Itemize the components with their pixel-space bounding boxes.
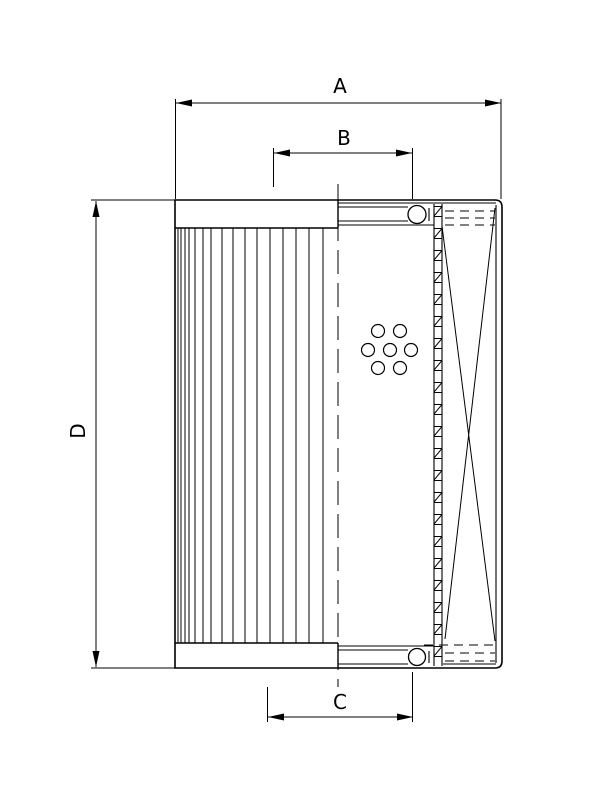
dim-b-label: B: [337, 126, 351, 150]
dim-d-label: D: [66, 423, 90, 438]
drawing-page: A B C D: [0, 0, 612, 792]
drawing-background: [0, 0, 612, 792]
dim-a-label: A: [333, 74, 347, 98]
dim-c-label: C: [333, 690, 347, 714]
center-tube-hatch: [434, 206, 442, 664]
filter-element-drawing: A B C D: [0, 0, 612, 792]
